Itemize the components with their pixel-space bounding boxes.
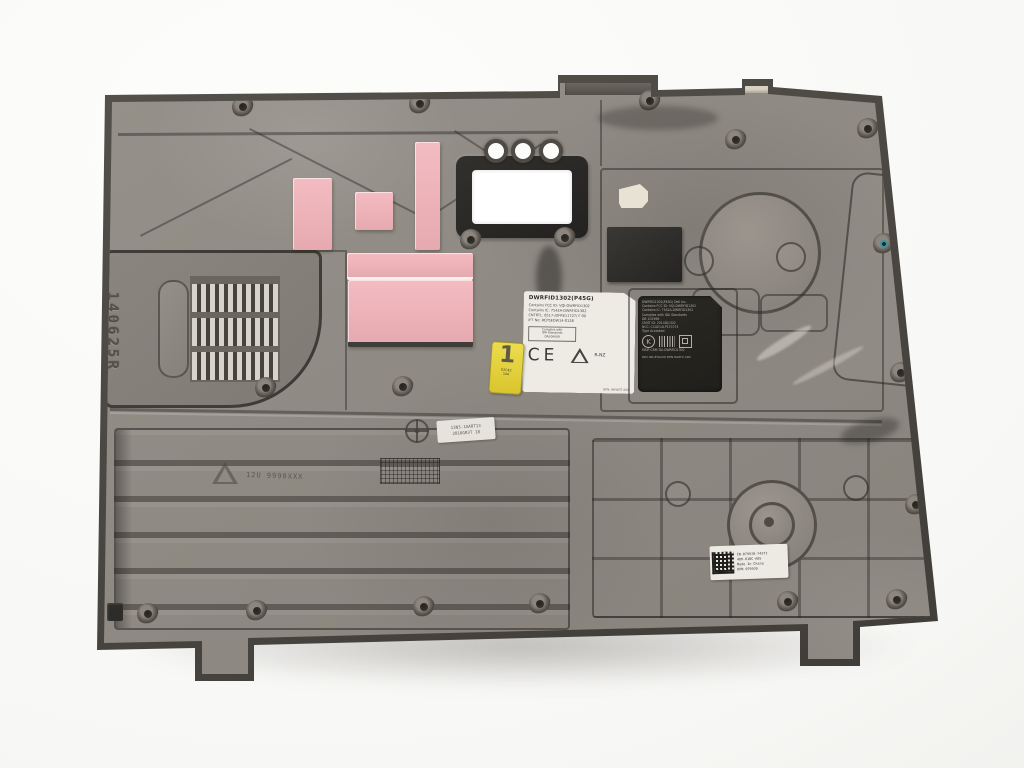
- battery-bay-ribs: [114, 428, 570, 630]
- thermal-pad-square: [355, 192, 393, 230]
- screw-boss: [554, 227, 576, 249]
- mold-date-label: 13N3-1AA0T13 2016GR3T 18: [436, 417, 495, 443]
- yellow-sticker-code: 10A: [490, 371, 521, 377]
- msip-line: MSIP-CRM-TAI-DWRFID1302: [642, 348, 718, 352]
- ida-standards-box: Complies with IDA Standards DA106008: [528, 326, 576, 342]
- kcc-square-icon: [679, 335, 692, 348]
- screw-boss: [460, 229, 482, 251]
- camera-window-gasket: [456, 156, 588, 238]
- rib-diagonal-1: [140, 158, 292, 237]
- donut-boss-center: [764, 517, 774, 527]
- ida-box-line: DA106008: [531, 335, 573, 339]
- screw-boss: [777, 591, 799, 613]
- regulatory-label-etched: DWRFID1302(P45G) Dell Inc. Contains FCC …: [638, 296, 722, 392]
- thermal-pad-strip-horizontal: [347, 253, 473, 280]
- pocket-circle-left: [665, 481, 691, 507]
- screw-boss: [725, 129, 747, 151]
- yellow-number-sticker: 1 E2C4Z 10A: [488, 341, 525, 395]
- top-dark-smudge: [598, 106, 718, 130]
- fan-wheel-icon: [405, 419, 429, 443]
- screw-boss: [413, 596, 435, 618]
- bottom-left-square-hole: [107, 603, 123, 621]
- screw-boss: [529, 593, 551, 615]
- rib-top-horizontal: [118, 131, 558, 136]
- rnz-triangle-icon: [570, 348, 588, 363]
- rib-vertical-top-center: [600, 100, 602, 166]
- screw-boss: [246, 600, 268, 622]
- black-foam-pad: [607, 227, 682, 282]
- service-label-line: DPN 0799J0: [737, 566, 768, 572]
- recycle-triangle-icon: [212, 462, 238, 484]
- through-hole-1: [484, 139, 508, 163]
- through-hole-2: [511, 139, 535, 163]
- datamatrix-code: [712, 552, 735, 575]
- regulatory-label-title: DWRFID1302(P45G): [529, 295, 631, 303]
- etched-label-footer: DPC NR-8TAC06 DPN 8A8T2 A00: [642, 355, 718, 359]
- circle-satellite-left: [684, 246, 714, 276]
- ce-mark: CE: [528, 345, 559, 366]
- vent-oval-slot: [158, 280, 189, 378]
- etched-line: Type Accepted: [642, 329, 718, 333]
- vent-grille: [190, 276, 280, 382]
- through-hole-3: [539, 139, 563, 163]
- keyhole-recess-right: [760, 294, 828, 332]
- thermal-pad-large: [348, 280, 473, 347]
- screw-boss: [137, 603, 159, 625]
- kc-mark-icon: K: [642, 335, 655, 348]
- screw-boss: [886, 589, 908, 611]
- barcode-bars-icon: [659, 336, 675, 347]
- photo-of-laptop-bottom-cover: 140625R: [0, 0, 1024, 768]
- thermal-pad-strip-vertical: [415, 142, 440, 250]
- regulatory-label-white: DWRFID1302(P45G) Contains FCC ID: VQI-DW…: [522, 291, 636, 394]
- yellow-sticker-digit: 1: [491, 342, 524, 369]
- circle-satellite-right: [776, 242, 806, 272]
- screw-boss: [857, 118, 879, 140]
- vent-mesh-patch: [380, 458, 440, 484]
- regulatory-label-footer: GPN: N6WGT A00: [603, 387, 629, 391]
- regulatory-label-line: IFT No: RCP5EDW14-0128: [528, 318, 630, 325]
- screw-boss: [392, 376, 414, 398]
- screw-boss: [255, 377, 277, 399]
- gasket-window: [472, 170, 572, 224]
- rnz-label: R-NZ: [594, 354, 605, 359]
- service-part-label: CN-0799J0-74373 48H-01BC-A05 Made In Chi…: [709, 544, 788, 581]
- mold-label-line: 2016GR3T 18: [452, 429, 480, 437]
- battery-bay-endcap: [116, 430, 132, 628]
- thermal-pad-tall: [293, 178, 332, 250]
- rib-diagonal-2: [249, 128, 419, 216]
- pocket-circle-right: [843, 475, 869, 501]
